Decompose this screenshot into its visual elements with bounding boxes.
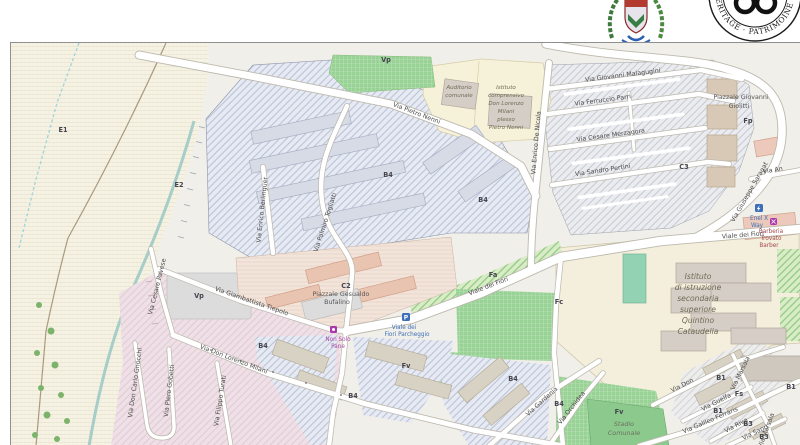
zone-label: C2 bbox=[341, 282, 351, 290]
svg-text:Don Lorenzo: Don Lorenzo bbox=[488, 101, 524, 107]
svg-text:Milani: Milani bbox=[498, 109, 515, 115]
svg-text:Pane: Pane bbox=[331, 344, 345, 350]
svg-text:plesso: plesso bbox=[496, 117, 515, 123]
zone-label: Fc bbox=[555, 298, 564, 306]
zone-label: Fv bbox=[402, 362, 412, 370]
svg-text:di istruzione: di istruzione bbox=[675, 283, 722, 292]
parking-icon-glyph: P bbox=[404, 315, 409, 322]
ev-charger-label: Enel X bbox=[750, 216, 768, 222]
zone-label: B1 bbox=[716, 374, 726, 382]
parking-label: Viale dei bbox=[392, 325, 417, 331]
svg-text:superiore: superiore bbox=[680, 305, 716, 314]
bakery-label: Non Solo bbox=[325, 337, 351, 343]
zone-label: E1 bbox=[58, 126, 68, 134]
zone-label: Fv bbox=[615, 408, 625, 416]
svg-text:Istituto: Istituto bbox=[496, 85, 516, 91]
document-page: HERITAGE · PATRIMOINE M bbox=[0, 0, 800, 445]
zone-label: B4 bbox=[554, 400, 564, 408]
municipal-coat-of-arms-icon bbox=[598, 0, 674, 42]
zone-label: Vp bbox=[381, 56, 391, 64]
zone-label: B1 bbox=[786, 383, 796, 391]
zone-label: B4 bbox=[383, 171, 393, 179]
zone-label: B4 bbox=[258, 342, 268, 350]
zone-label: Vp bbox=[194, 292, 204, 300]
svg-text:Comunale: Comunale bbox=[608, 429, 640, 437]
barber-label: Barberia bbox=[759, 229, 783, 235]
svg-text:Giolitti: Giolitti bbox=[729, 103, 750, 110]
svg-text:Auditorio: Auditorio bbox=[445, 85, 472, 91]
zone-label: B4 bbox=[508, 375, 518, 383]
svg-text:Pietro Nenni: Pietro Nenni bbox=[489, 125, 524, 131]
school-sports-field bbox=[623, 254, 646, 303]
zone-label: Fp bbox=[743, 117, 753, 125]
zone-label: Fa bbox=[489, 271, 498, 279]
svg-text:Stadio: Stadio bbox=[614, 420, 634, 428]
svg-text:Istituto: Istituto bbox=[685, 272, 712, 281]
svg-text:Fiori Parcheggio: Fiori Parcheggio bbox=[384, 332, 430, 338]
piazzale-giolitti-label: Piazzale Giovanni bbox=[713, 94, 768, 101]
svg-text:comprensivo: comprensivo bbox=[488, 93, 525, 99]
svg-text:comunale: comunale bbox=[445, 93, 473, 99]
piazzale-bufalino-label: Piazzale Gesualdo bbox=[313, 291, 370, 298]
map-canvas: P E1 E2 Vp Vp B4 B4 B4 B4 B4 B4 C3 C2 Fp… bbox=[10, 42, 800, 445]
svg-text:Bufalino: Bufalino bbox=[324, 299, 350, 306]
zone-label: C3 bbox=[679, 163, 689, 171]
zone-label: E2 bbox=[174, 181, 184, 189]
page-header: HERITAGE · PATRIMOINE M bbox=[0, 0, 800, 42]
green-edge-1 bbox=[777, 249, 800, 293]
world-heritage-emblem-icon: HERITAGE · PATRIMOINE M bbox=[700, 0, 800, 42]
zone-label: B4 bbox=[478, 196, 488, 204]
svg-text:Trovato: Trovato bbox=[760, 236, 782, 242]
svg-text:secondaria: secondaria bbox=[677, 294, 719, 303]
zone-label: Fs bbox=[735, 390, 744, 398]
zone-label: B4 bbox=[348, 392, 358, 400]
svg-text:Barber: Barber bbox=[759, 243, 779, 249]
svg-text:Quintino: Quintino bbox=[682, 316, 715, 325]
svg-text:Cataudella: Cataudella bbox=[678, 327, 719, 336]
